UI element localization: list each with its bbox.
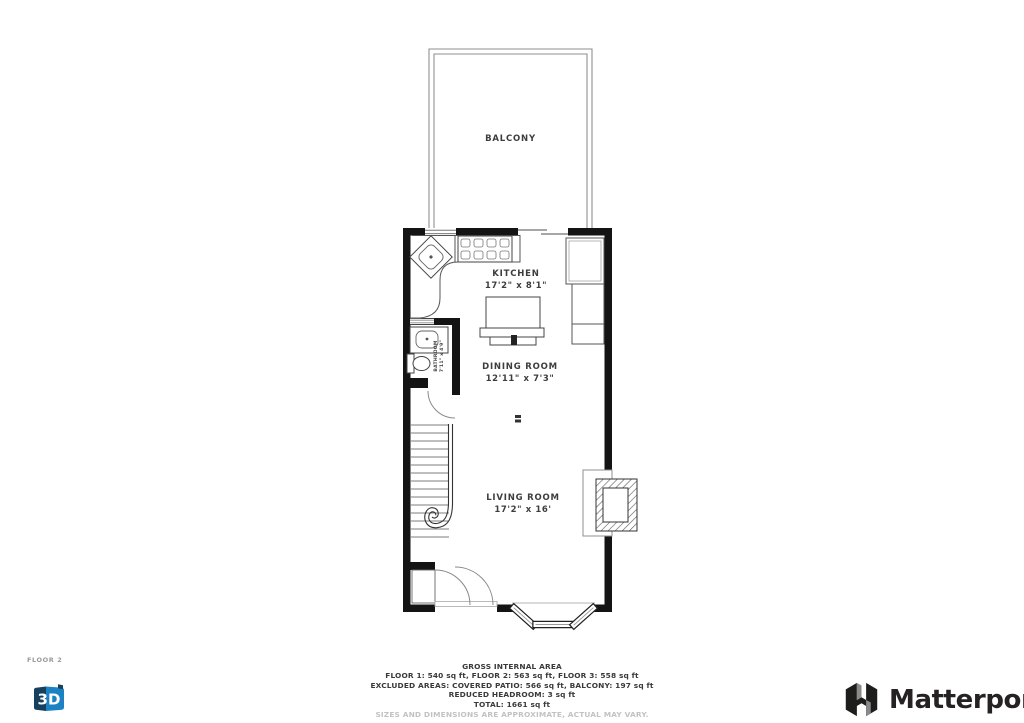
bathroom-label: BATHROOM 7'11" x 4'9"	[434, 325, 448, 387]
bathroom-dimensions: 7'11" x 4'9"	[440, 325, 446, 387]
toilet-icon	[407, 354, 430, 373]
floorplan-page: BALCONY KITCHEN 17'2" x 8'1" DINING ROOM…	[0, 0, 1024, 723]
entry-door-arcs	[412, 567, 497, 607]
balcony-label: BALCONY	[429, 133, 592, 145]
dining-room-name: DINING ROOM	[460, 361, 580, 373]
window-top-wall	[425, 228, 456, 236]
3d-button-label: 3D	[38, 691, 61, 709]
dining-room-label: DINING ROOM 12'11" x 7'3"	[460, 361, 580, 385]
kitchen-name: KITCHEN	[456, 268, 576, 280]
bathroom-door-arc	[428, 391, 455, 418]
3d-cube-icon: 3D	[30, 683, 68, 714]
fireplace-icon	[583, 470, 637, 536]
matterport-logo-text: Matterport	[889, 685, 1024, 715]
staircase	[410, 424, 453, 537]
kitchen-island	[480, 297, 544, 345]
floor-selector-label: FLOOR 2	[27, 656, 62, 664]
balcony-name: BALCONY	[429, 133, 592, 145]
view-3d-button[interactable]: 3D	[30, 683, 68, 714]
living-room-label: LIVING ROOM 17'2" x 16'	[463, 492, 583, 516]
kitchen-dimensions: 17'2" x 8'1"	[456, 280, 576, 292]
stove-icon	[458, 236, 512, 262]
floor-areas-line: FLOOR 1: 540 sq ft, FLOOR 2: 563 sq ft, …	[0, 671, 1024, 680]
matterport-logo: Matterport	[843, 681, 1024, 718]
sliding-door-icon	[518, 230, 568, 234]
bathroom-wall-window	[410, 319, 434, 324]
kitchen-label: KITCHEN 17'2" x 8'1"	[456, 268, 576, 292]
dining-room-dimensions: 12'11" x 7'3"	[460, 373, 580, 385]
living-room-dimensions: 17'2" x 16'	[463, 504, 583, 516]
living-room-name: LIVING ROOM	[463, 492, 583, 504]
kitchen-sink-icon	[410, 236, 452, 278]
matterport-m-flag-icon	[843, 681, 880, 718]
bay-window-icon	[512, 603, 595, 625]
dining-marker	[515, 415, 521, 423]
gross-internal-area-title: GROSS INTERNAL AREA	[0, 662, 1024, 671]
